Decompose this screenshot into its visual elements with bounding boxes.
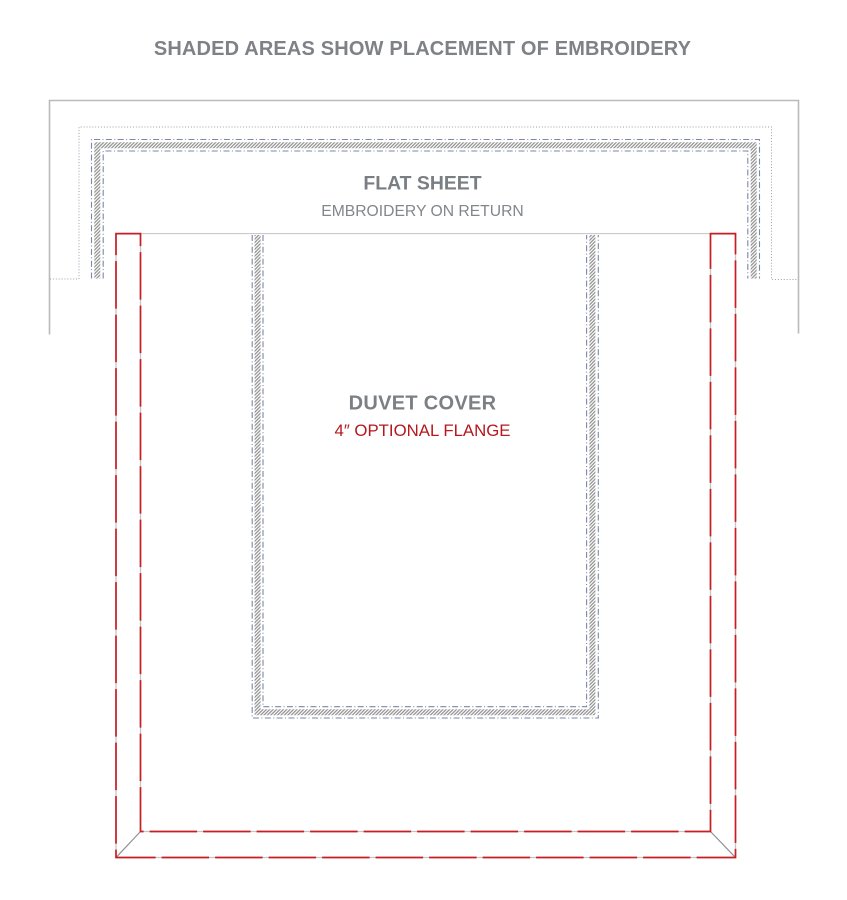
svg-text:DUVET COVER: DUVET COVER [349,393,497,415]
svg-text:FLAT SHEET: FLAT SHEET [363,173,481,195]
svg-text:SHADED AREAS SHOW PLACEMENT OF: SHADED AREAS SHOW PLACEMENT OF EMBROIDER… [154,38,692,60]
svg-text:4″ OPTIONAL FLANGE: 4″ OPTIONAL FLANGE [335,421,511,440]
svg-text:EMBROIDERY ON RETURN: EMBROIDERY ON RETURN [321,203,524,220]
